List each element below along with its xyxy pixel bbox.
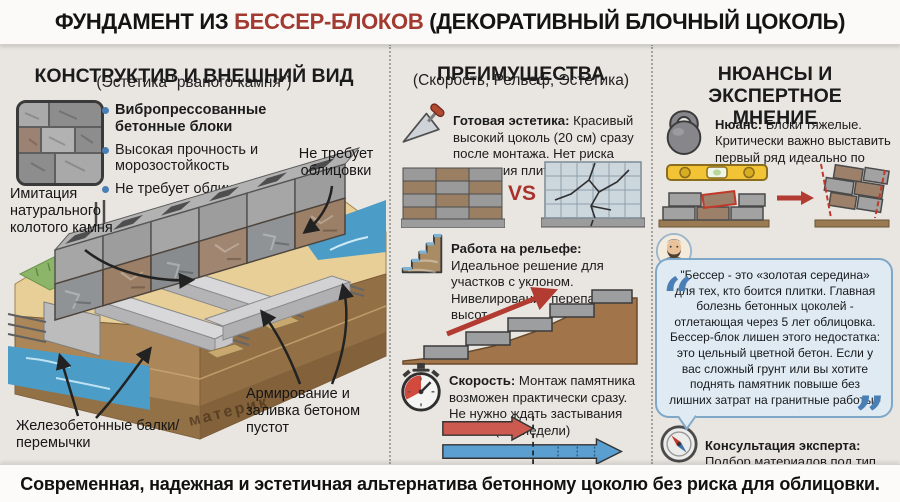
timeline-comparison-image — [435, 416, 635, 464]
advantage-title: Готовая эстетика: — [453, 113, 569, 128]
close-quote-icon: ” — [855, 401, 885, 432]
advantage-title: Скорость: — [449, 373, 515, 388]
cracked-tiles-image — [541, 158, 645, 228]
section-advantages: ПРЕИМУЩЕСТВА (Скорость, Рельеф, Эстетика… — [389, 44, 653, 464]
middle-subheading: (Скорость, Рельеф, Эстетика) — [391, 72, 651, 90]
label-reinforcement: Армирование и заливка бетоном пустот — [246, 386, 391, 437]
stairs-icon — [399, 230, 445, 276]
trowel-icon — [399, 102, 445, 148]
advantage-title: Работа на рельефе: — [451, 241, 582, 256]
kettlebell-icon — [659, 102, 709, 156]
bullet-label: Вибропрессованные бетонные блоки — [115, 102, 266, 135]
title-suffix: (ДЕКОРАТИВНЫЙ БЛОЧНЫЙ ЦОКОЛЬ) — [423, 9, 845, 34]
level-alignment-image — [657, 158, 893, 236]
stopwatch-icon — [397, 362, 445, 414]
slope-steps-image — [399, 282, 641, 366]
footer-bar: Современная, надежная и эстетичная альте… — [0, 464, 900, 502]
left-subheading: (Эстетика "рваного камня") — [0, 74, 388, 92]
label-beams: Железобетонные балки/перемычки — [16, 418, 191, 452]
title-prefix: ФУНДАМЕНТ ИЗ — [55, 9, 234, 34]
label-no-cladding: Не требует облицовки — [286, 146, 386, 180]
vs-label: VS — [508, 182, 536, 206]
expert-quote-bubble: “ "Бессер - это «золотая середина» для т… — [655, 258, 893, 418]
section-construction: КОНСТРУКТИВ И ВНЕШНИЙ ВИД (Эстетика "рва… — [0, 44, 388, 464]
infographic-root: ФУНДАМЕНТ ИЗ БЕССЕР-БЛОКОВ (ДЕКОРАТИВНЫЙ… — [0, 0, 900, 502]
block-wall-image — [401, 164, 505, 228]
expert-quote-text: "Бессер - это «золотая середина» для тех… — [669, 268, 881, 410]
title-highlight: БЕССЕР-БЛОКОВ — [234, 9, 423, 34]
compass-icon — [659, 424, 699, 464]
title-bar: ФУНДАМЕНТ ИЗ БЕССЕР-БЛОКОВ (ДЕКОРАТИВНЫЙ… — [0, 0, 900, 45]
consultation-title: Консультация эксперта: — [705, 438, 860, 453]
nuance-title: Нюанс: — [715, 117, 762, 132]
section-expert: НЮАНСЫ И ЭКСПЕРТНОЕ МНЕНИЕ Нюанс: Блоки … — [651, 44, 900, 464]
footer-tagline: Современная, надежная и эстетичная альте… — [20, 474, 879, 495]
bullet-item: Вибропрессованные бетонные блоки — [102, 102, 287, 136]
open-quote-icon: “ — [663, 282, 693, 313]
label-imitation: Имитация натурального колотого камня — [10, 186, 140, 237]
page-title: ФУНДАМЕНТ ИЗ БЕССЕР-БЛОКОВ (ДЕКОРАТИВНЫЙ… — [55, 9, 845, 35]
